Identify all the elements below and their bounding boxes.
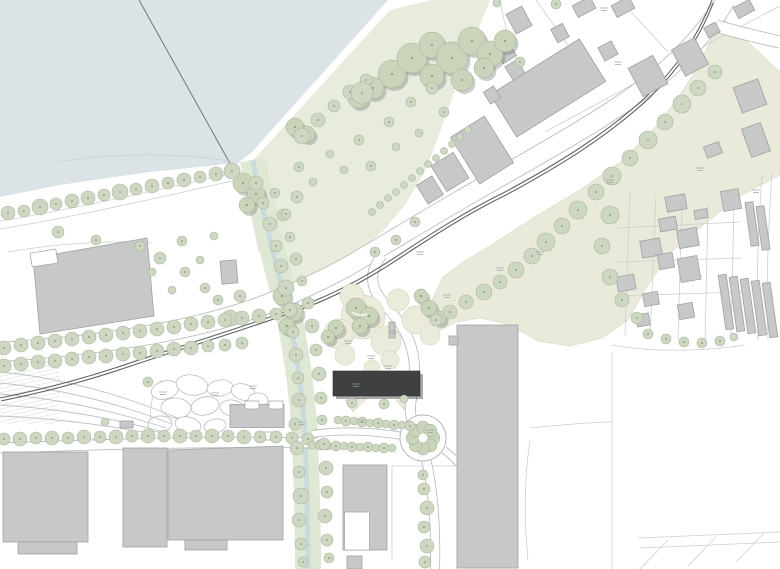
- rail-fan-layer: [0, 360, 178, 434]
- proposed-building: [333, 371, 423, 399]
- site-plan: [0, 0, 780, 569]
- site-plan-svg: [0, 0, 780, 569]
